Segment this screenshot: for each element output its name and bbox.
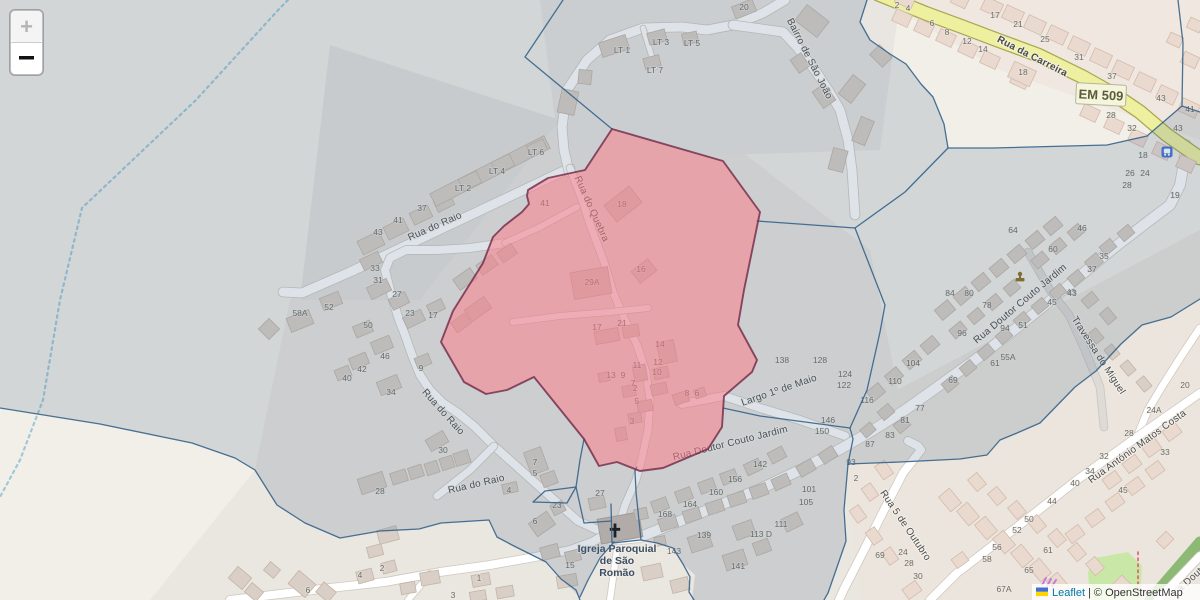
svg-text:de São: de São [600, 555, 634, 567]
svg-text:12: 12 [962, 36, 972, 46]
svg-text:24: 24 [898, 547, 908, 557]
svg-text:30: 30 [913, 571, 923, 581]
svg-text:56: 56 [992, 542, 1002, 552]
svg-text:61: 61 [1043, 545, 1053, 555]
svg-text:6: 6 [306, 585, 311, 595]
svg-text:3: 3 [451, 590, 456, 600]
svg-text:17: 17 [990, 10, 1000, 20]
svg-text:43: 43 [1156, 93, 1166, 103]
svg-text:67A: 67A [996, 584, 1011, 594]
svg-text:69: 69 [875, 550, 885, 560]
svg-text:6: 6 [930, 18, 935, 28]
svg-text:EM 509: EM 509 [1078, 86, 1124, 103]
svg-text:4: 4 [906, 3, 911, 13]
svg-text:25: 25 [1040, 34, 1050, 44]
svg-text:14: 14 [978, 44, 988, 54]
svg-text:2: 2 [895, 0, 900, 10]
svg-text:40: 40 [1070, 478, 1080, 488]
svg-text:24A: 24A [1146, 405, 1161, 415]
svg-text:50: 50 [1024, 514, 1034, 524]
svg-text:2: 2 [854, 473, 859, 483]
svg-text:Leaflet: Leaflet [1052, 587, 1085, 599]
svg-text:31: 31 [1074, 52, 1084, 62]
svg-text:+: + [20, 14, 33, 39]
svg-text:45: 45 [1118, 485, 1128, 495]
svg-text:37: 37 [1107, 71, 1117, 81]
svg-text:58: 58 [982, 554, 992, 564]
svg-text:20: 20 [1180, 380, 1190, 390]
svg-text:21: 21 [1013, 19, 1023, 29]
svg-text:65: 65 [1024, 565, 1034, 575]
svg-text:8: 8 [945, 27, 950, 37]
svg-text:1: 1 [477, 573, 482, 583]
svg-text:18: 18 [1018, 67, 1028, 77]
svg-text:28: 28 [1106, 110, 1116, 120]
svg-text:28: 28 [1124, 428, 1134, 438]
svg-text:33: 33 [1160, 447, 1170, 457]
svg-text:32: 32 [1099, 451, 1109, 461]
svg-text:28: 28 [904, 558, 914, 568]
svg-text:44: 44 [1047, 496, 1057, 506]
svg-text:| © OpenStreetMap: | © OpenStreetMap [1088, 587, 1183, 599]
svg-text:34: 34 [1085, 466, 1095, 476]
svg-text:4: 4 [358, 570, 363, 580]
svg-text:2: 2 [380, 563, 385, 573]
svg-text:52: 52 [1012, 525, 1022, 535]
svg-text:32: 32 [1127, 123, 1137, 133]
svg-text:Romão: Romão [599, 567, 635, 579]
